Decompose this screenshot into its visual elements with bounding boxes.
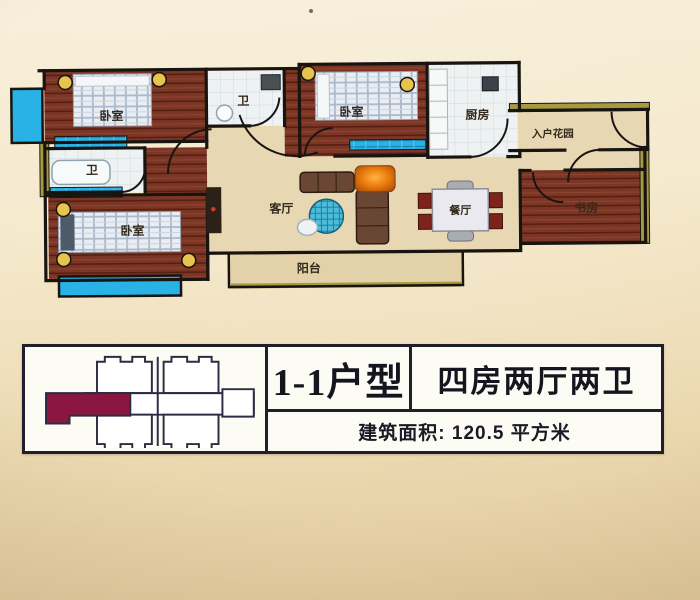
pillow-bedroom3: [60, 214, 74, 250]
unit-type-label: 1-1户型: [268, 347, 412, 409]
dining-chair: [489, 214, 502, 229]
keyplan-cell: [25, 347, 268, 451]
layout-label: 四房两厅两卫: [412, 347, 661, 409]
column-dot: [182, 253, 196, 267]
label-bedroom2: 卧室: [339, 104, 363, 119]
label-living: 客厅: [268, 200, 293, 215]
label-bedroom3: 卧室: [120, 223, 144, 238]
wing-lower-left: [97, 415, 152, 448]
wing-right-mid: [222, 389, 253, 416]
wing-lower-right: [164, 415, 219, 448]
tv-indicator: [211, 207, 215, 211]
orange-lamp: [355, 166, 395, 192]
wall-bedroom2-left: [299, 64, 300, 156]
column-dot: [58, 75, 72, 89]
wall-entry-top: [509, 109, 647, 110]
wall-left-lower: [45, 143, 46, 281]
label-balcony: 阳台: [297, 260, 321, 275]
pillow-bedroom1: [75, 76, 149, 87]
column-dot: [57, 252, 71, 266]
label-entry-garden: 入户花园: [532, 127, 574, 140]
column-dot: [152, 73, 166, 87]
wing-upper-right: [164, 357, 219, 393]
dining-chair-bottom: [448, 231, 474, 241]
entry-garden-floor: [509, 109, 647, 150]
pillow-bedroom2: [317, 74, 329, 118]
label-dining: 餐厅: [448, 203, 471, 217]
column-dot: [56, 202, 70, 216]
floorplan-svg: 卧室 卫 卧室 厨房 入户花园 卫 卧室 客厅 餐厅 书房 阳台: [0, 0, 700, 343]
bay-window-left: [11, 89, 42, 143]
dining-chair: [418, 214, 431, 229]
toilet-bath1: [261, 75, 280, 90]
info-top-row: 1-1户型 四房两厅两卫: [268, 347, 661, 412]
label-bath2: 卫: [86, 163, 98, 177]
wall-kitchen-left: [427, 63, 428, 157]
balcony-floor: [229, 251, 463, 287]
counter-kitchen: [429, 69, 448, 149]
wall-bedroom2-bottom: [335, 155, 428, 156]
keyplan-svg: [28, 350, 262, 448]
label-bedroom1: 卧室: [99, 108, 123, 123]
info-right: 1-1户型 四房两厅两卫 建筑面积: 120.5 平方米: [268, 347, 661, 451]
wing-upper-left: [97, 357, 152, 393]
bathtub-bath2: [52, 160, 110, 185]
stove-kitchen: [482, 77, 498, 91]
wardrobe-strip-bedroom2: [350, 139, 426, 150]
label-kitchen: 厨房: [465, 107, 489, 122]
dining-chair: [418, 193, 431, 208]
label-study: 书房: [574, 200, 598, 215]
info-table: 1-1户型 四房两厅两卫 建筑面积: 120.5 平方米: [22, 344, 664, 454]
plate-living: [297, 219, 317, 235]
sofa-vertical: [356, 190, 388, 244]
floorplan-drawing: 卧室 卫 卧室 厨房 入户花园 卫 卧室 客厅 餐厅 书房 阳台: [0, 0, 700, 343]
dining-chair: [489, 193, 502, 208]
area-label: 建筑面积: 120.5 平方米: [268, 412, 661, 451]
wall-bedroom3-top: [48, 194, 207, 195]
label-bath1: 卫: [237, 94, 249, 108]
wall-top-left: [39, 68, 299, 70]
wall-bedroom3-bottom: [49, 279, 208, 280]
column-dot: [400, 77, 414, 91]
floorplan-flyer-photo: { "floorplan": { "rooms": { "bedroom_top…: [0, 0, 700, 600]
sink-bath1: [216, 105, 232, 121]
wall-study-bottom: [521, 242, 646, 243]
wood-strip: [284, 68, 300, 156]
wall-bedroom1-right: [206, 69, 207, 147]
column-dot: [301, 66, 315, 80]
wall-study-right: [645, 147, 646, 242]
sofa-horizontal: [300, 172, 354, 192]
bedroom-hall-floor: [145, 147, 207, 195]
wall-study-left: [520, 171, 521, 244]
